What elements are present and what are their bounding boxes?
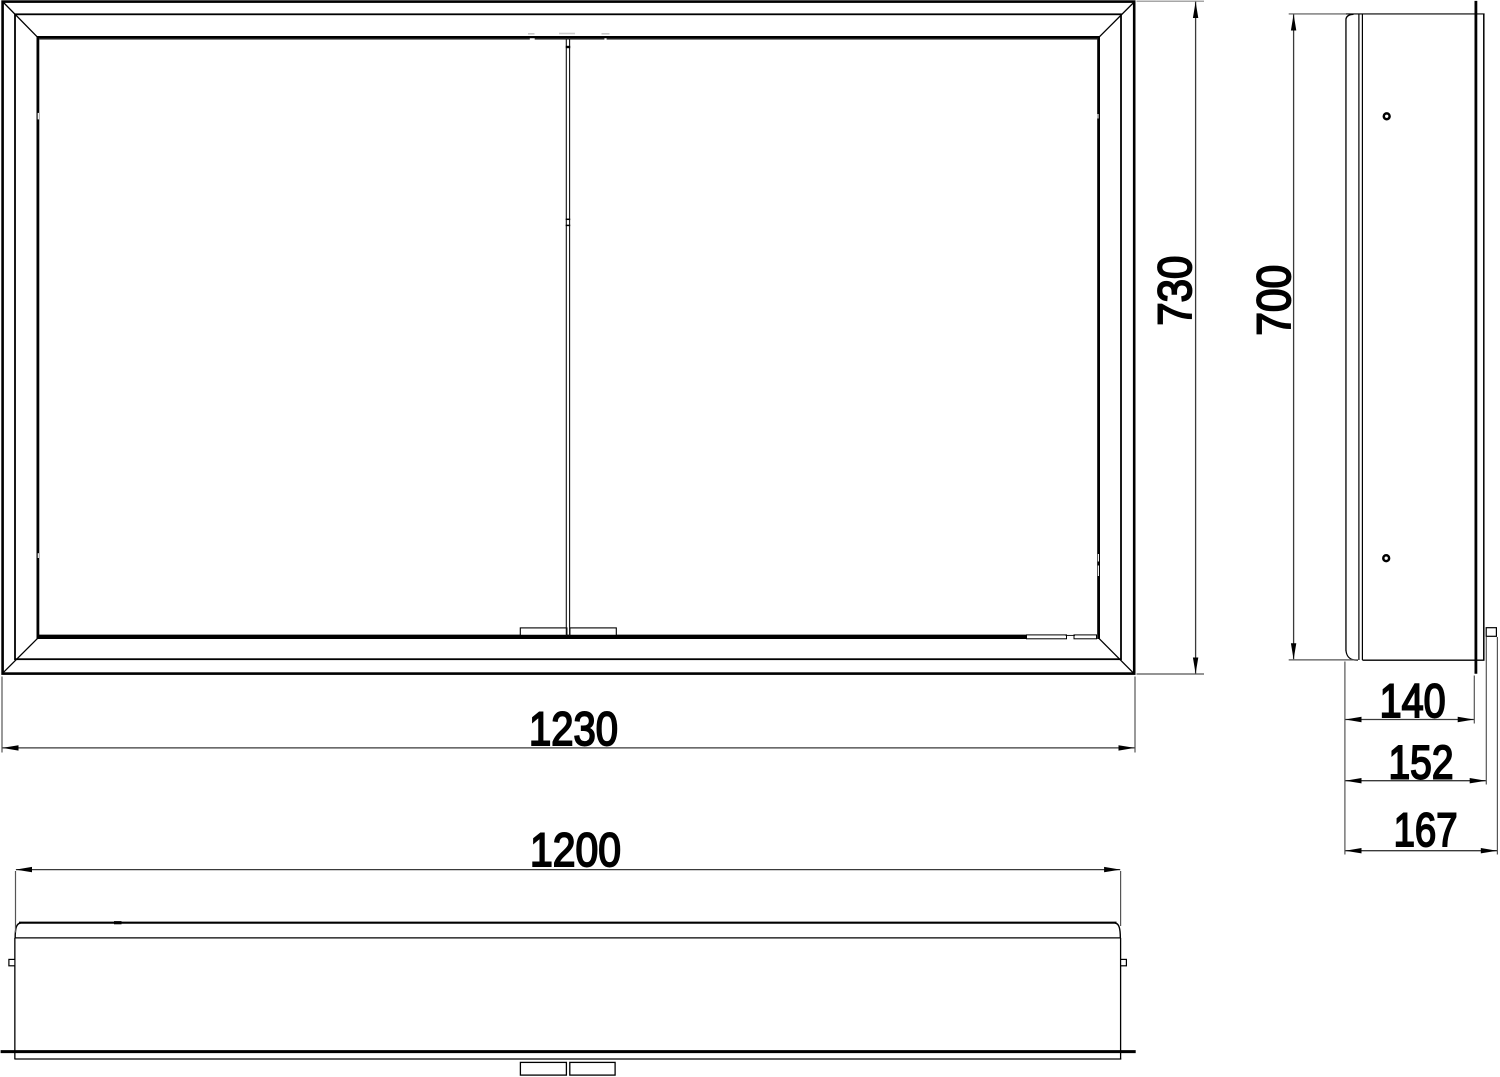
svg-text:730: 730 — [1149, 256, 1202, 326]
svg-text:140: 140 — [1380, 675, 1446, 728]
svg-text:700: 700 — [1248, 265, 1301, 336]
svg-text:1200: 1200 — [530, 824, 621, 877]
svg-text:152: 152 — [1389, 737, 1454, 790]
svg-text:167: 167 — [1394, 804, 1458, 857]
svg-text:1230: 1230 — [529, 703, 618, 756]
